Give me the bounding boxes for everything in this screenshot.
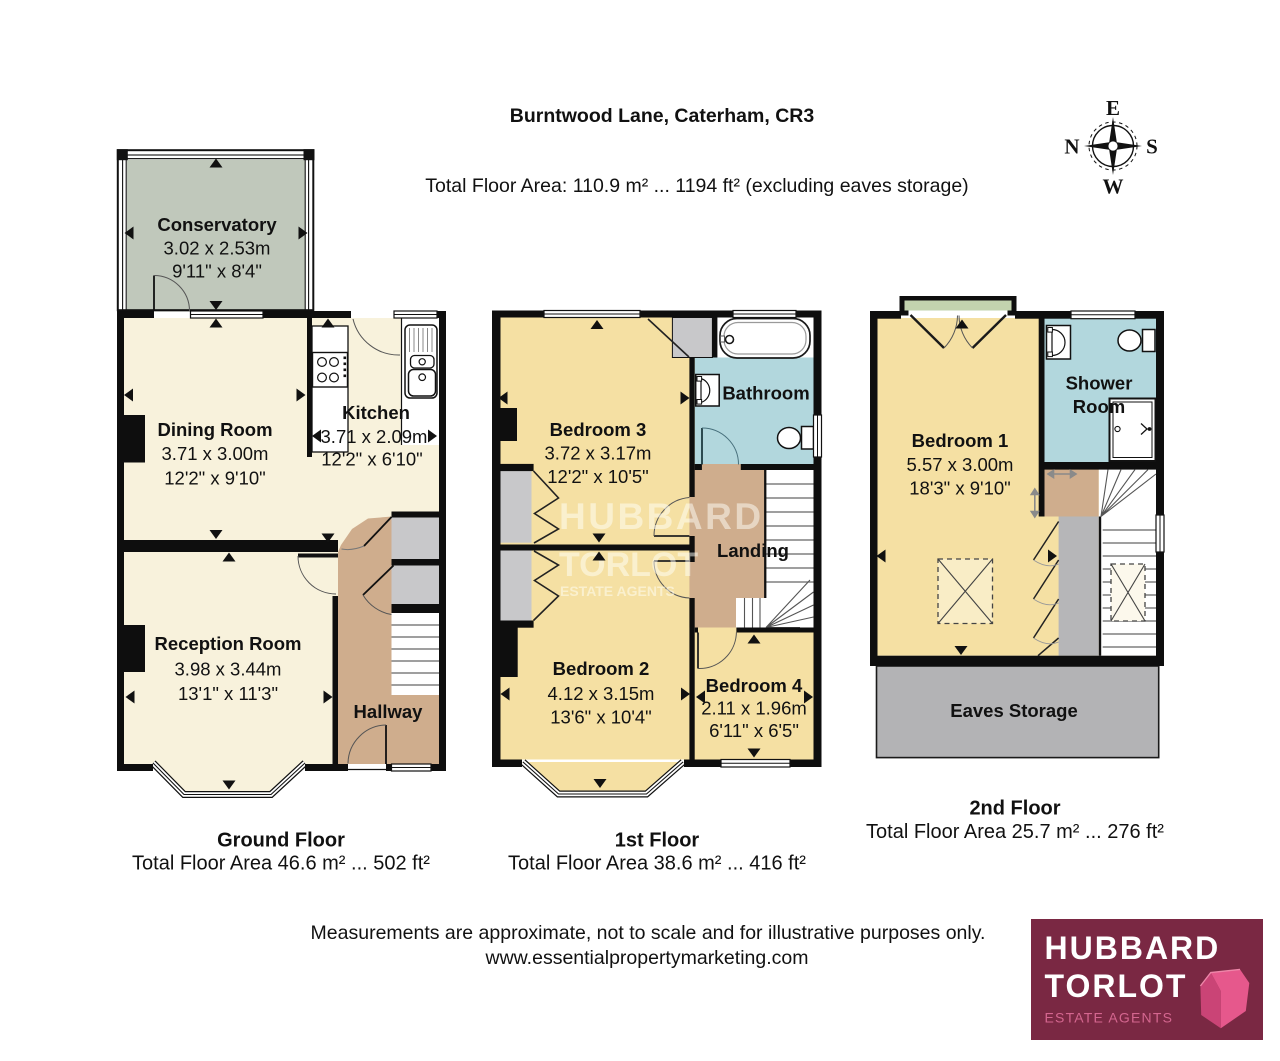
svg-text:Total Floor Area: 110.9 m² ...: Total Floor Area: 110.9 m² ... 1194 ft² … bbox=[425, 175, 968, 197]
svg-text:HUBBARD: HUBBARD bbox=[1045, 930, 1221, 966]
svg-text:2nd Floor: 2nd Floor bbox=[969, 798, 1060, 820]
svg-text:N: N bbox=[1064, 135, 1079, 159]
svg-text:13'6" x 10'4": 13'6" x 10'4" bbox=[550, 707, 651, 728]
svg-text:TORLOT: TORLOT bbox=[1045, 968, 1188, 1004]
svg-text:S: S bbox=[1146, 135, 1158, 159]
svg-text:TORLOT: TORLOT bbox=[559, 546, 698, 584]
svg-text:Bedroom 4: Bedroom 4 bbox=[706, 675, 803, 696]
svg-text:Room: Room bbox=[1073, 396, 1125, 417]
svg-text:Kitchen: Kitchen bbox=[342, 402, 410, 423]
svg-text:Reception Room: Reception Room bbox=[155, 633, 302, 654]
svg-text:Shower: Shower bbox=[1066, 373, 1133, 394]
svg-text:3.98 x 3.44m: 3.98 x 3.44m bbox=[175, 659, 282, 680]
svg-text:Dining Room: Dining Room bbox=[157, 419, 272, 440]
svg-text:3.72 x 3.17m: 3.72 x 3.17m bbox=[545, 443, 652, 464]
svg-text:Measurements are approximate,: Measurements are approximate, not to sca… bbox=[311, 922, 986, 944]
svg-text:1st Floor: 1st Floor bbox=[615, 830, 700, 852]
svg-text:3.02 x 2.53m: 3.02 x 2.53m bbox=[164, 238, 271, 259]
svg-text:ESTATE AGENTS: ESTATE AGENTS bbox=[1045, 1010, 1174, 1026]
svg-text:12'2" x 9'10": 12'2" x 9'10" bbox=[164, 468, 265, 489]
svg-text:18'3" x 9'10": 18'3" x 9'10" bbox=[909, 478, 1010, 499]
svg-text:Burntwood Lane, Caterham, CR3: Burntwood Lane, Caterham, CR3 bbox=[510, 105, 815, 127]
svg-text:Bedroom 3: Bedroom 3 bbox=[550, 419, 647, 440]
svg-text:Bedroom 2: Bedroom 2 bbox=[553, 658, 650, 679]
svg-text:Conservatory: Conservatory bbox=[157, 214, 277, 235]
svg-text:5.57 x 3.00m: 5.57 x 3.00m bbox=[907, 454, 1014, 475]
svg-text:W: W bbox=[1103, 175, 1124, 199]
svg-text:www.essentialpropertymarketing: www.essentialpropertymarketing.com bbox=[485, 947, 809, 969]
svg-text:Eaves Storage: Eaves Storage bbox=[950, 700, 1078, 721]
svg-text:3.71 x 2.09m: 3.71 x 2.09m bbox=[321, 426, 428, 447]
svg-text:Ground Floor: Ground Floor bbox=[217, 830, 345, 852]
svg-text:4.12 x 3.15m: 4.12 x 3.15m bbox=[548, 683, 655, 704]
svg-text:Bedroom 1: Bedroom 1 bbox=[912, 430, 1009, 451]
svg-text:12'2" x 6'10": 12'2" x 6'10" bbox=[321, 449, 422, 470]
svg-text:ESTATE AGENTS: ESTATE AGENTS bbox=[560, 583, 675, 599]
svg-text:9'11" x 8'4": 9'11" x 8'4" bbox=[172, 261, 262, 282]
svg-text:Bathroom: Bathroom bbox=[722, 383, 809, 404]
svg-text:2.11 x 1.96m: 2.11 x 1.96m bbox=[701, 698, 807, 719]
svg-text:Hallway: Hallway bbox=[354, 701, 424, 722]
svg-text:Landing: Landing bbox=[717, 540, 789, 561]
svg-text:Total Floor Area 46.6 m² ... 5: Total Floor Area 46.6 m² ... 502 ft² bbox=[132, 853, 430, 875]
svg-text:HUBBARD: HUBBARD bbox=[559, 496, 764, 537]
svg-text:Total Floor Area 38.6 m² ... 4: Total Floor Area 38.6 m² ... 416 ft² bbox=[508, 853, 806, 875]
svg-text:E: E bbox=[1106, 96, 1120, 120]
svg-text:6'11" x 6'5": 6'11" x 6'5" bbox=[709, 720, 799, 741]
svg-text:3.71 x 3.00m: 3.71 x 3.00m bbox=[162, 443, 269, 464]
svg-text:Total Floor Area 25.7 m² ... 2: Total Floor Area 25.7 m² ... 276 ft² bbox=[866, 821, 1164, 843]
svg-text:12'2" x 10'5": 12'2" x 10'5" bbox=[547, 466, 648, 487]
svg-text:13'1" x 11'3": 13'1" x 11'3" bbox=[178, 683, 278, 704]
